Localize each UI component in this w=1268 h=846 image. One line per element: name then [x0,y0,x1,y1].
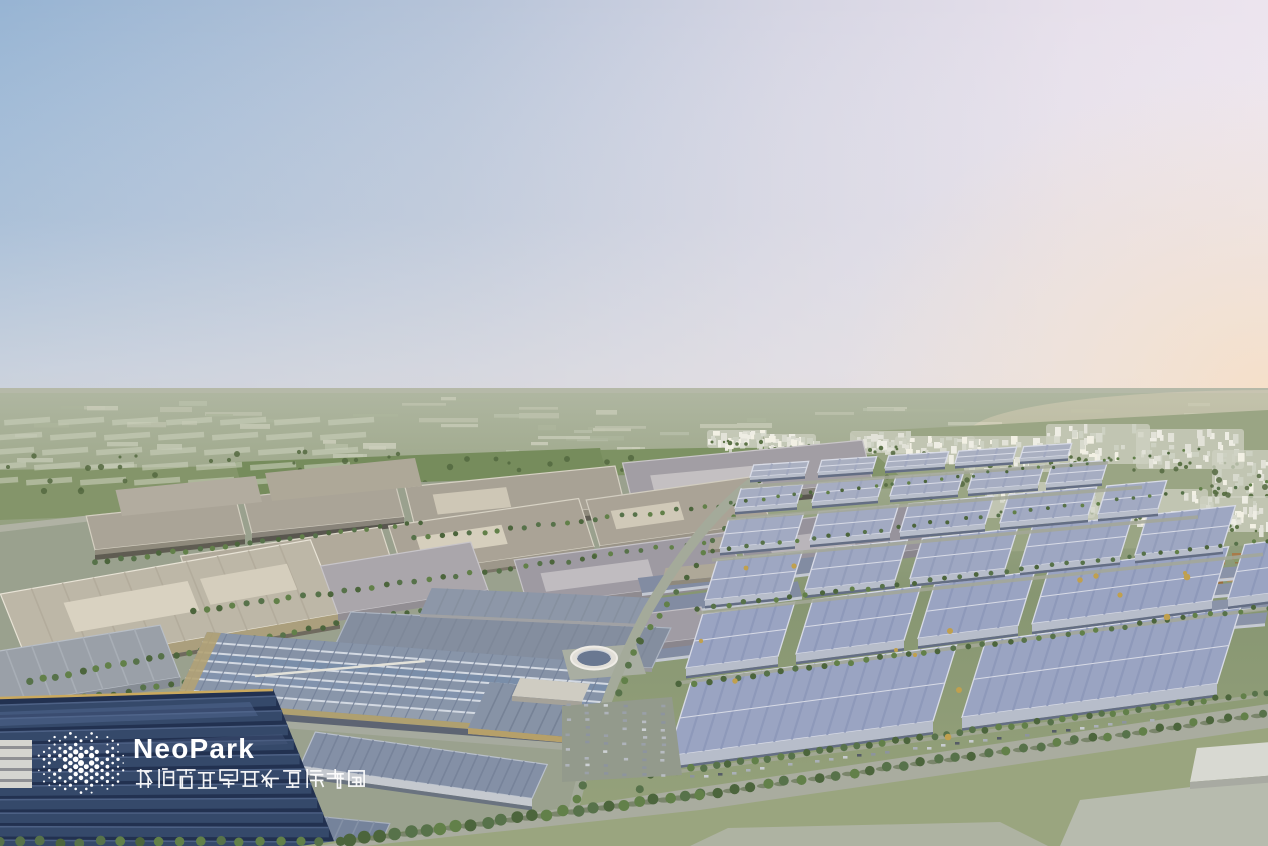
svg-text:NeoPark: NeoPark [133,733,255,764]
